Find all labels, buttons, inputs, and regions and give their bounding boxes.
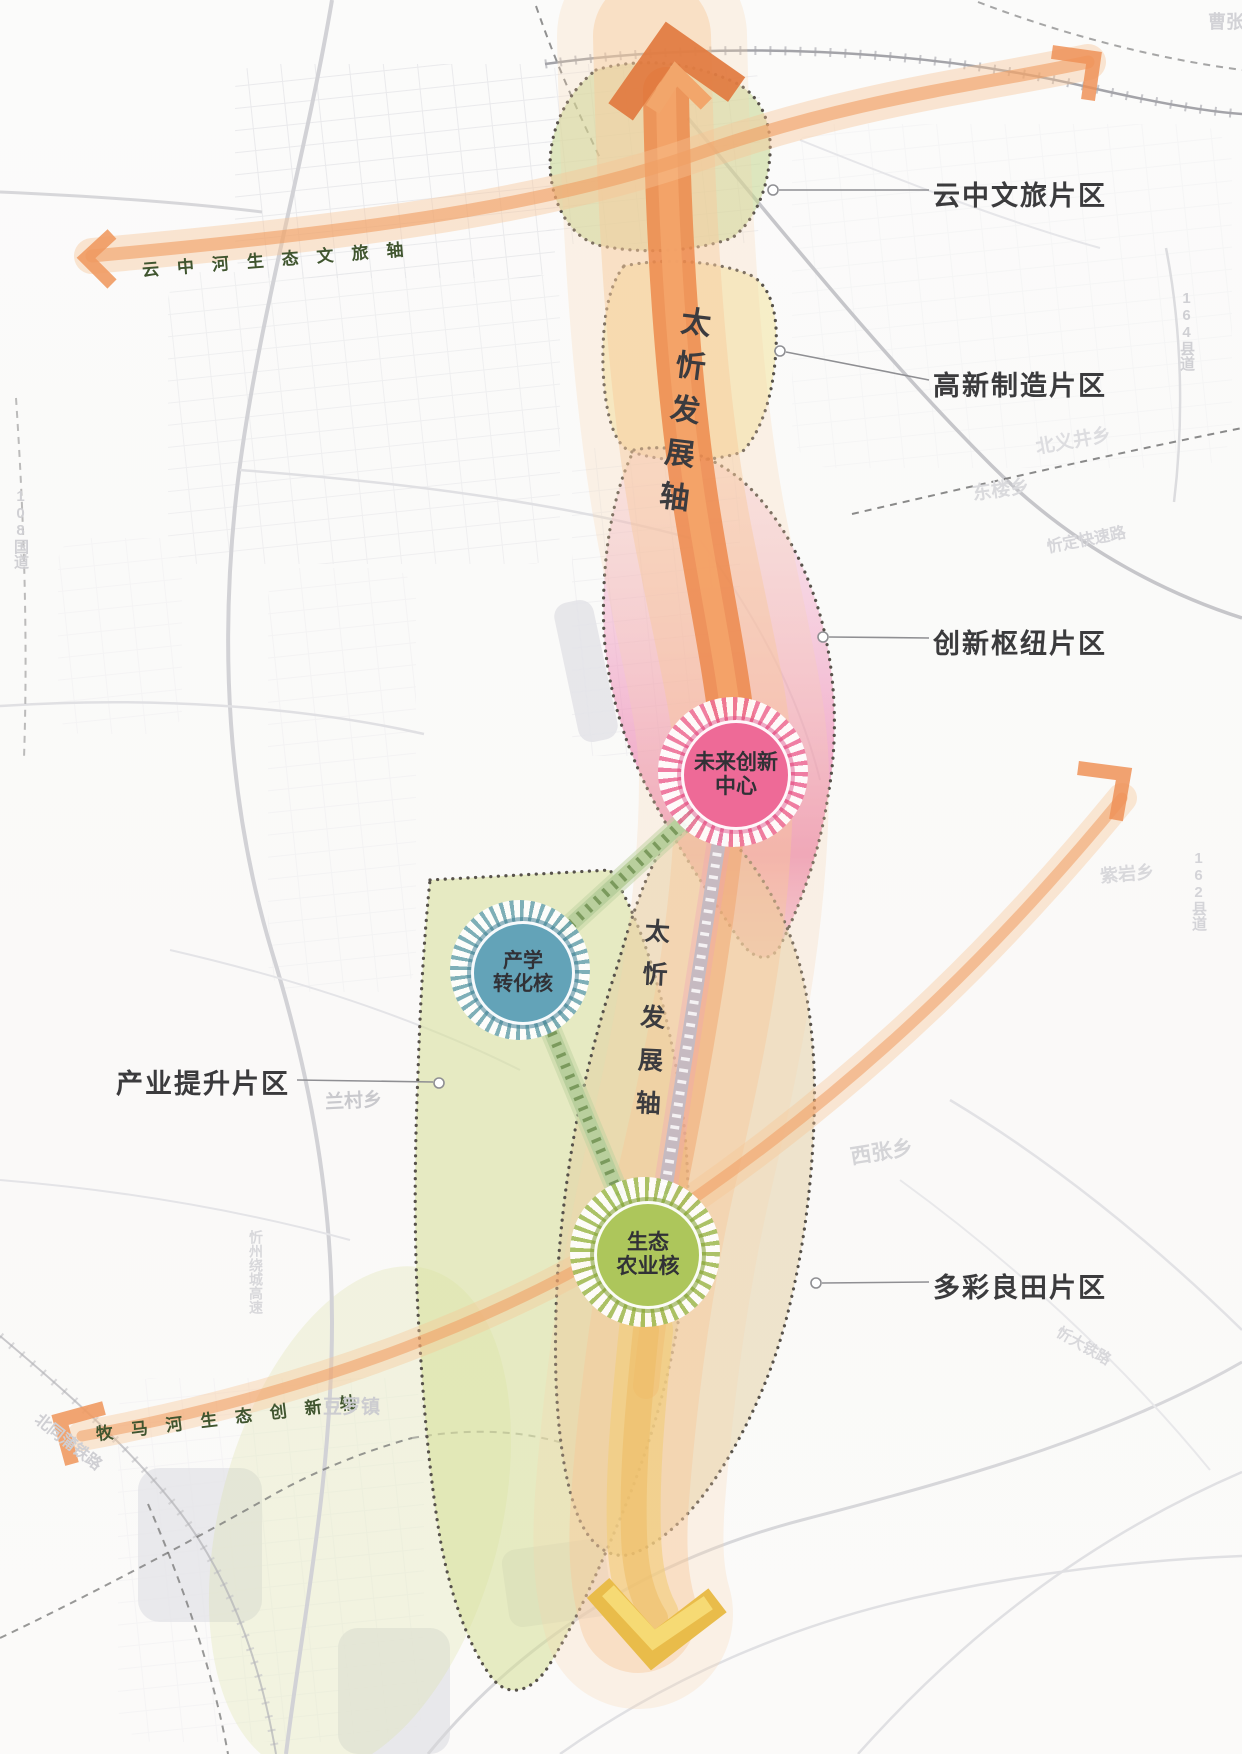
place-label-douluozhen: 豆罗镇: [323, 1392, 380, 1419]
core-label: 生态: [627, 1231, 669, 1255]
core-label: 产学: [503, 950, 543, 973]
core-label: 中心: [715, 775, 757, 799]
place-label-ziyanxiang: 紫岩乡: [1099, 858, 1155, 889]
road-label-164: 164县道: [1176, 290, 1197, 371]
road-label-162: 162县道: [1188, 850, 1209, 931]
road-label-ring-expressway: 忻州绕城高速: [246, 1230, 266, 1314]
planning-map: 未来创新 中心 产学 转化核 生态 农业核 云中文旅片区 高新制造片区 创新枢纽…: [0, 0, 1242, 1754]
place-label-lancunxiang: 兰村乡: [324, 1085, 382, 1115]
industry-study-core: 产学 转化核: [471, 921, 575, 1025]
district-label-liangtian: 多彩良田片区: [933, 1266, 1107, 1305]
future-innovation-core: 未来创新 中心: [681, 720, 791, 830]
place-label-caozhangxiang: 曹张乡: [1208, 8, 1242, 34]
core-label: 转化核: [493, 973, 553, 996]
district-label-wenlv: 云中文旅片区: [933, 174, 1107, 213]
core-label: 农业核: [617, 1255, 680, 1279]
core-label: 未来创新: [694, 751, 778, 775]
district-label-chuangxin: 创新枢纽片区: [933, 622, 1107, 661]
district-label-gaoxin: 高新制造片区: [933, 364, 1107, 403]
road-label-g108: 108国道: [10, 488, 31, 569]
eco-agri-core: 生态 农业核: [594, 1201, 702, 1309]
district-label-chanye: 产业提升片区: [116, 1062, 290, 1101]
